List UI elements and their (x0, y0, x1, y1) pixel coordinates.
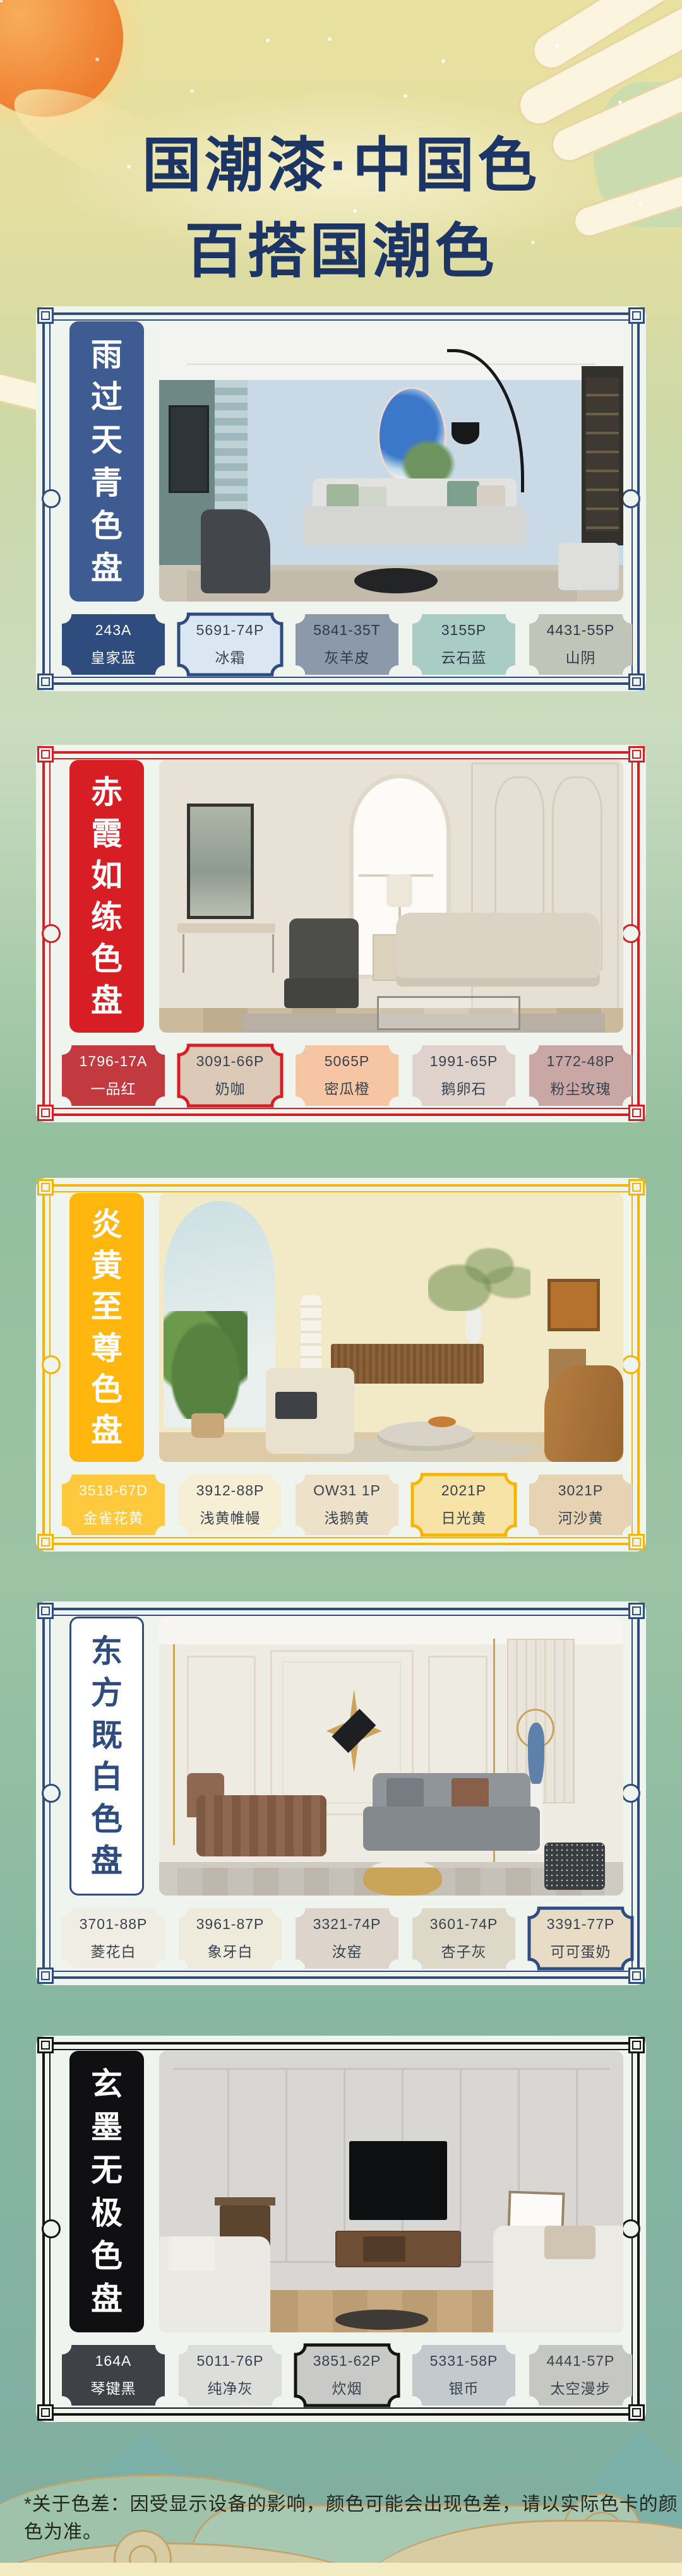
frame-corner-ornament (37, 1105, 54, 1121)
swatch-name: 鹅卵石 (441, 1077, 487, 1098)
swatch-name: 奶咖 (215, 1077, 246, 1098)
frame-corner-ornament (628, 674, 645, 690)
pillow (169, 2236, 215, 2270)
branch-foliage (428, 1236, 530, 1311)
swatch-code: 3601-74P (430, 1916, 498, 1933)
swatch-labels: 1772-48P 粉尘玫瑰 (529, 1045, 632, 1106)
coffee-table (335, 2310, 428, 2329)
swatch-code: 243A (95, 622, 132, 639)
color-swatch: 2021P 日光黄 (412, 1475, 515, 1535)
swatch-name: 冰霜 (215, 646, 246, 667)
swatch-labels: 164A 琴键黑 (62, 2345, 165, 2406)
palette-title-char: 霞 (91, 818, 123, 850)
frame-corner-ornament (628, 1603, 645, 1619)
color-swatch: 3391-77P 可可蛋奶 (529, 1908, 632, 1969)
swatch-code: 3851-62P (313, 2353, 381, 2370)
color-swatch: 3321-74P 汝窑 (296, 1908, 398, 1969)
color-swatch: 5691-74P 冰霜 (179, 614, 282, 675)
color-swatch: 3091-66P 奶咖 (179, 1045, 282, 1106)
frame-corner-ornament (628, 2037, 645, 2053)
room-photo (159, 1617, 623, 1896)
swatch-code: 3321-74P (313, 1916, 381, 1933)
swatch-name: 粉尘玫瑰 (551, 1077, 611, 1098)
swatch-row: 243A 皇家蓝 5691-74P 冰霜 5841-35T 灰羊皮 3155P … (62, 614, 632, 675)
palette-title-plaque: 玄墨无极色盘 (69, 2051, 144, 2332)
palette-title-char: 盘 (91, 985, 123, 1016)
frame-side-ornament (621, 924, 640, 943)
palette-title-char: 无 (91, 2154, 123, 2186)
round-coffee-table (377, 1422, 474, 1451)
color-swatch: 3912-88P 浅黄帷幔 (179, 1475, 282, 1535)
palette-card: 雨过天青色盘 243A 皇家蓝 5691-74P 冰霜 5841-35T 灰羊皮 (36, 306, 646, 691)
swatch-code: 3518-67D (79, 1482, 148, 1499)
pillow (544, 2226, 595, 2260)
swatch-name: 密瓜橙 (325, 1077, 370, 1098)
swatch-labels: 3391-77P 可可蛋奶 (529, 1908, 632, 1969)
swatch-name: 杏子灰 (441, 1940, 487, 1961)
palette-title-char: 天 (91, 424, 123, 456)
shelves (586, 377, 618, 531)
swatch-labels: 3701-88P 菱花白 (62, 1908, 165, 1969)
palette-card: 东方既白色盘 3701-88P 菱花白 3961-87P 象牙白 3321-74… (36, 1601, 646, 1985)
palette-title-char: 色 (91, 1374, 123, 1405)
frame-corner-ornament (37, 2404, 54, 2421)
color-swatch: 3021P 河沙黄 (529, 1475, 632, 1535)
swatch-labels: 5065P 密瓜橙 (296, 1045, 398, 1106)
swatch-code: 4441-57P (547, 2353, 615, 2370)
lounge-chair (201, 509, 270, 593)
frame-side-ornament (42, 1355, 61, 1374)
fruit-bowl (428, 1416, 456, 1427)
frame-side-ornament (42, 489, 61, 508)
console-legs (182, 934, 275, 972)
swatch-code: 3961-87P (196, 1916, 265, 1933)
swatch-code: 2021P (441, 1482, 487, 1499)
pillow (447, 481, 479, 509)
swatch-name: 灰羊皮 (325, 646, 370, 667)
swatch-labels: 3601-74P 杏子灰 (412, 1908, 515, 1969)
palette-card: 炎黄至尊色盘 3518-67D 金雀花黄 3912-88P 浅黄帷幔 OW31 … (36, 1178, 646, 1552)
frame-corner-ornament (37, 1534, 54, 1550)
room-photo (159, 321, 623, 602)
palette-title-plaque: 雨过天青色盘 (69, 321, 144, 602)
chesterfield-sofa (396, 913, 600, 987)
palette-title-char: 盘 (91, 552, 123, 584)
table-lamp (386, 874, 412, 907)
color-swatch: 3155P 云石蓝 (412, 614, 515, 675)
swatch-labels: 5331-58P 银币 (412, 2345, 515, 2406)
palette-title-char: 赤 (91, 776, 123, 808)
swatch-code: 164A (95, 2353, 132, 2370)
ottoman (558, 543, 619, 590)
palette-title-char: 盘 (91, 1415, 123, 1446)
swatch-labels: 3961-87P 象牙白 (179, 1908, 282, 1969)
swatch-name: 银币 (449, 2377, 479, 2398)
swatch-labels: 4441-57P 太空漫步 (529, 2345, 632, 2406)
swatch-name: 炊烟 (332, 2377, 362, 2398)
color-swatch: 1772-48P 粉尘玫瑰 (529, 1045, 632, 1106)
swatch-code: 1991-65P (430, 1053, 498, 1070)
room-photo (159, 760, 623, 1033)
page-subtitle: 百搭国潮色 (0, 203, 682, 289)
color-swatch: 4431-55P 山阴 (529, 614, 632, 675)
frame-corner-ornament (37, 1179, 54, 1196)
swatch-name: 皇家蓝 (91, 646, 136, 667)
palette-title-char: 盘 (91, 1845, 123, 1877)
swatch-labels: OW31 1P 浅鹅黄 (296, 1475, 398, 1535)
frame-side-ornament (621, 1355, 640, 1374)
swatch-labels: 3091-66P 奶咖 (179, 1045, 282, 1106)
coffee-table (354, 568, 438, 593)
color-swatch: 1991-65P 鹅卵石 (412, 1045, 515, 1106)
room-photo (159, 1193, 623, 1462)
palette-title-char: 极 (91, 2197, 123, 2229)
pillow (275, 1392, 317, 1419)
swatch-name: 山阴 (566, 646, 596, 667)
swatch-name: 可可蛋奶 (551, 1940, 611, 1961)
swatch-code: 3701-88P (80, 1916, 148, 1933)
palette-title-plaque: 东方既白色盘 (69, 1617, 144, 1896)
gold-coffee-table (363, 1860, 442, 1896)
frame-corner-ornament (37, 2037, 54, 2053)
palette-title-char: 玄 (91, 2069, 123, 2100)
color-swatch: 4441-57P 太空漫步 (529, 2345, 632, 2406)
swatch-labels: 3912-88P 浅黄帷幔 (179, 1475, 282, 1535)
swatch-name: 浅鹅黄 (325, 1506, 370, 1528)
swatch-name: 河沙黄 (558, 1506, 604, 1528)
color-swatch: 164A 琴键黑 (62, 2345, 165, 2406)
frame-corner-ornament (37, 746, 54, 763)
swatch-code: 1772-48P (547, 1053, 615, 1070)
swatch-labels: 4431-55P 山阴 (529, 614, 632, 675)
frame-side-ornament (42, 924, 61, 943)
star-dots (0, 0, 3, 3)
gold-trim (173, 1644, 175, 1845)
palette-title-char: 色 (91, 943, 123, 975)
swatch-name: 浅黄帷幔 (200, 1506, 261, 1528)
page-title: 国潮漆·中国色 (0, 117, 682, 203)
color-swatch: 5065P 密瓜橙 (296, 1045, 398, 1106)
swatch-name: 纯净灰 (208, 2377, 253, 2398)
palette-title-char: 东 (91, 1635, 123, 1667)
swatch-name: 琴键黑 (91, 2377, 136, 2398)
palette-title-char: 黄 (91, 1250, 123, 1281)
swatch-labels: 5011-76P 纯净灰 (179, 2345, 282, 2406)
armchair-seat (284, 978, 359, 1009)
frame-side-ornament (42, 1784, 61, 1803)
swatch-code: 5331-58P (430, 2353, 498, 2370)
frame-side-ornament (42, 2219, 61, 2238)
color-swatch: 3701-88P 菱花白 (62, 1908, 165, 1969)
palette-title-char: 色 (91, 1803, 123, 1835)
swatch-labels: 5691-74P 冰霜 (179, 614, 282, 675)
palette-title-char: 墨 (91, 2111, 123, 2143)
swatch-code: 4431-55P (547, 622, 615, 639)
palette-title-char: 色 (91, 2240, 123, 2272)
swatch-row: 1796-17A 一品红 3091-66P 奶咖 5065P 密瓜橙 1991-… (62, 1045, 632, 1106)
sofa-seat (363, 1807, 539, 1851)
color-swatch: 5331-58P 银币 (412, 2345, 515, 2406)
color-swatch: 3601-74P 杏子灰 (412, 1908, 515, 1969)
frame-side-ornament (621, 1784, 640, 1803)
color-swatch: 3518-67D 金雀花黄 (62, 1475, 165, 1535)
swatch-code: 3091-66P (196, 1053, 265, 1070)
color-disclaimer: *关于色差：因受显示设备的影响，颜色可能会出现色差，请以实际色卡的颜色为准。 (24, 2488, 682, 2544)
frame-corner-ornament (628, 1105, 645, 1121)
rattan-chair (544, 1365, 623, 1462)
palette-title-char: 雨 (91, 339, 123, 371)
ribbed-bench (196, 1795, 326, 1856)
console-table (177, 923, 275, 933)
room-photo (159, 2051, 623, 2332)
swatch-name: 云石蓝 (441, 646, 487, 667)
palette-title-plaque: 赤霞如练色盘 (69, 760, 144, 1033)
bottom-strip (0, 2563, 682, 2576)
frame-corner-ornament (37, 674, 54, 690)
swatch-labels: 3155P 云石蓝 (412, 614, 515, 675)
color-swatch: OW31 1P 浅鹅黄 (296, 1475, 398, 1535)
palette-title-char: 如 (91, 860, 123, 891)
swatch-labels: 2021P 日光黄 (412, 1475, 515, 1535)
swatch-name: 菱花白 (91, 1940, 136, 1961)
swatch-labels: 3321-74P 汝窑 (296, 1908, 398, 1969)
palette-card: 玄墨无极色盘 164A 琴键黑 5011-76P 纯净灰 3851-62P 炊烟 (36, 2036, 646, 2422)
glass-coffee-table (377, 996, 520, 1030)
frame-corner-ornament (628, 1534, 645, 1550)
palette-title-char: 尊 (91, 1333, 123, 1364)
color-swatch: 1796-17A 一品红 (62, 1045, 165, 1106)
frame-corner-ornament (628, 307, 645, 324)
art-frame (547, 1279, 601, 1331)
frame-side-ornament (621, 489, 640, 508)
palette-card: 赤霞如练色盘 1796-17A 一品红 3091-66P 奶咖 5065P 密瓜… (36, 745, 646, 1122)
swatch-row: 3518-67D 金雀花黄 3912-88P 浅黄帷幔 OW31 1P 浅鹅黄 … (62, 1475, 632, 1535)
swatch-labels: 3851-62P 炊烟 (296, 2345, 398, 2406)
swatch-name: 象牙白 (208, 1940, 253, 1961)
frame-corner-ornament (628, 746, 645, 763)
plant-pot (191, 1413, 224, 1437)
palette-title-char: 青 (91, 467, 123, 499)
swatch-code: 5065P (325, 1053, 370, 1070)
ceiling (159, 321, 623, 380)
color-swatch: 5841-35T 灰羊皮 (296, 614, 398, 675)
palette-title-char: 至 (91, 1291, 123, 1322)
cabinet-top (215, 2197, 275, 2205)
swatch-code: 3155P (441, 622, 487, 639)
palette-title-char: 炎 (91, 1209, 123, 1240)
swatch-row: 3701-88P 菱花白 3961-87P 象牙白 3321-74P 汝窑 36… (62, 1908, 632, 1969)
palette-title-char: 既 (91, 1719, 123, 1751)
swatch-name: 太空漫步 (551, 2377, 611, 2398)
swatch-name: 一品红 (91, 1077, 136, 1098)
swatch-labels: 1991-65P 鹅卵石 (412, 1045, 515, 1106)
color-swatch: 3961-87P 象牙白 (179, 1908, 282, 1969)
swatch-name: 汝窑 (332, 1940, 362, 1961)
color-swatch: 3851-62P 炊烟 (296, 2345, 398, 2406)
palette-title-char: 白 (91, 1761, 123, 1793)
swatch-code: 3391-77P (547, 1916, 615, 1933)
swatch-code: 1796-17A (80, 1053, 148, 1070)
palette-title-char: 练 (91, 901, 123, 933)
swatch-name: 金雀花黄 (83, 1506, 144, 1528)
swatch-labels: 3518-67D 金雀花黄 (62, 1475, 165, 1535)
swatch-labels: 1796-17A 一品红 (62, 1045, 165, 1106)
sofa-seat (303, 506, 526, 545)
houndstooth-pouf (544, 1843, 605, 1890)
blue-figurine (528, 1723, 544, 1784)
vase (465, 1306, 482, 1344)
frame-corner-ornament (37, 307, 54, 324)
swatch-labels: 5841-35T 灰羊皮 (296, 614, 398, 675)
palette-title-char: 过 (91, 381, 123, 413)
art-frame (187, 804, 254, 919)
swatch-labels: 3021P 河沙黄 (529, 1475, 632, 1535)
tv-screen (349, 2141, 446, 2220)
swatch-code: 3912-88P (196, 1482, 265, 1499)
console-door (363, 2236, 405, 2262)
swatch-code: OW31 1P (313, 1482, 381, 1499)
frame-corner-ornament (37, 1603, 54, 1619)
palm-plant (164, 1311, 247, 1418)
color-swatch: 5011-76P 纯净灰 (179, 2345, 282, 2406)
swatch-name: 日光黄 (441, 1506, 487, 1528)
frame-corner-ornament (628, 1179, 645, 1196)
swatch-labels: 243A 皇家蓝 (62, 614, 165, 675)
color-swatch: 243A 皇家蓝 (62, 614, 165, 675)
swatch-row: 164A 琴键黑 5011-76P 纯净灰 3851-62P 炊烟 5331-5… (62, 2345, 632, 2406)
swatch-code: 5841-35T (313, 622, 380, 639)
ceiling-recess (187, 364, 595, 365)
palette-title-char: 盘 (91, 2283, 123, 2315)
frame-corner-ornament (628, 1968, 645, 1984)
frame-corner-ornament (628, 2404, 645, 2421)
art-frame (169, 405, 210, 493)
swatch-code: 3021P (558, 1482, 604, 1499)
swatch-code: 5691-74P (196, 622, 265, 639)
frame-corner-ornament (37, 1968, 54, 1984)
swatch-code: 5011-76P (196, 2353, 263, 2370)
palette-title-char: 方 (91, 1677, 123, 1709)
palette-title-char: 色 (91, 510, 123, 542)
poster-page: 国潮漆·中国色 百搭国潮色 雨过天青色盘 243A 皇家蓝 5691-74P (0, 0, 682, 2576)
frame-side-ornament (621, 2219, 640, 2238)
palette-title-plaque: 炎黄至尊色盘 (69, 1193, 144, 1462)
